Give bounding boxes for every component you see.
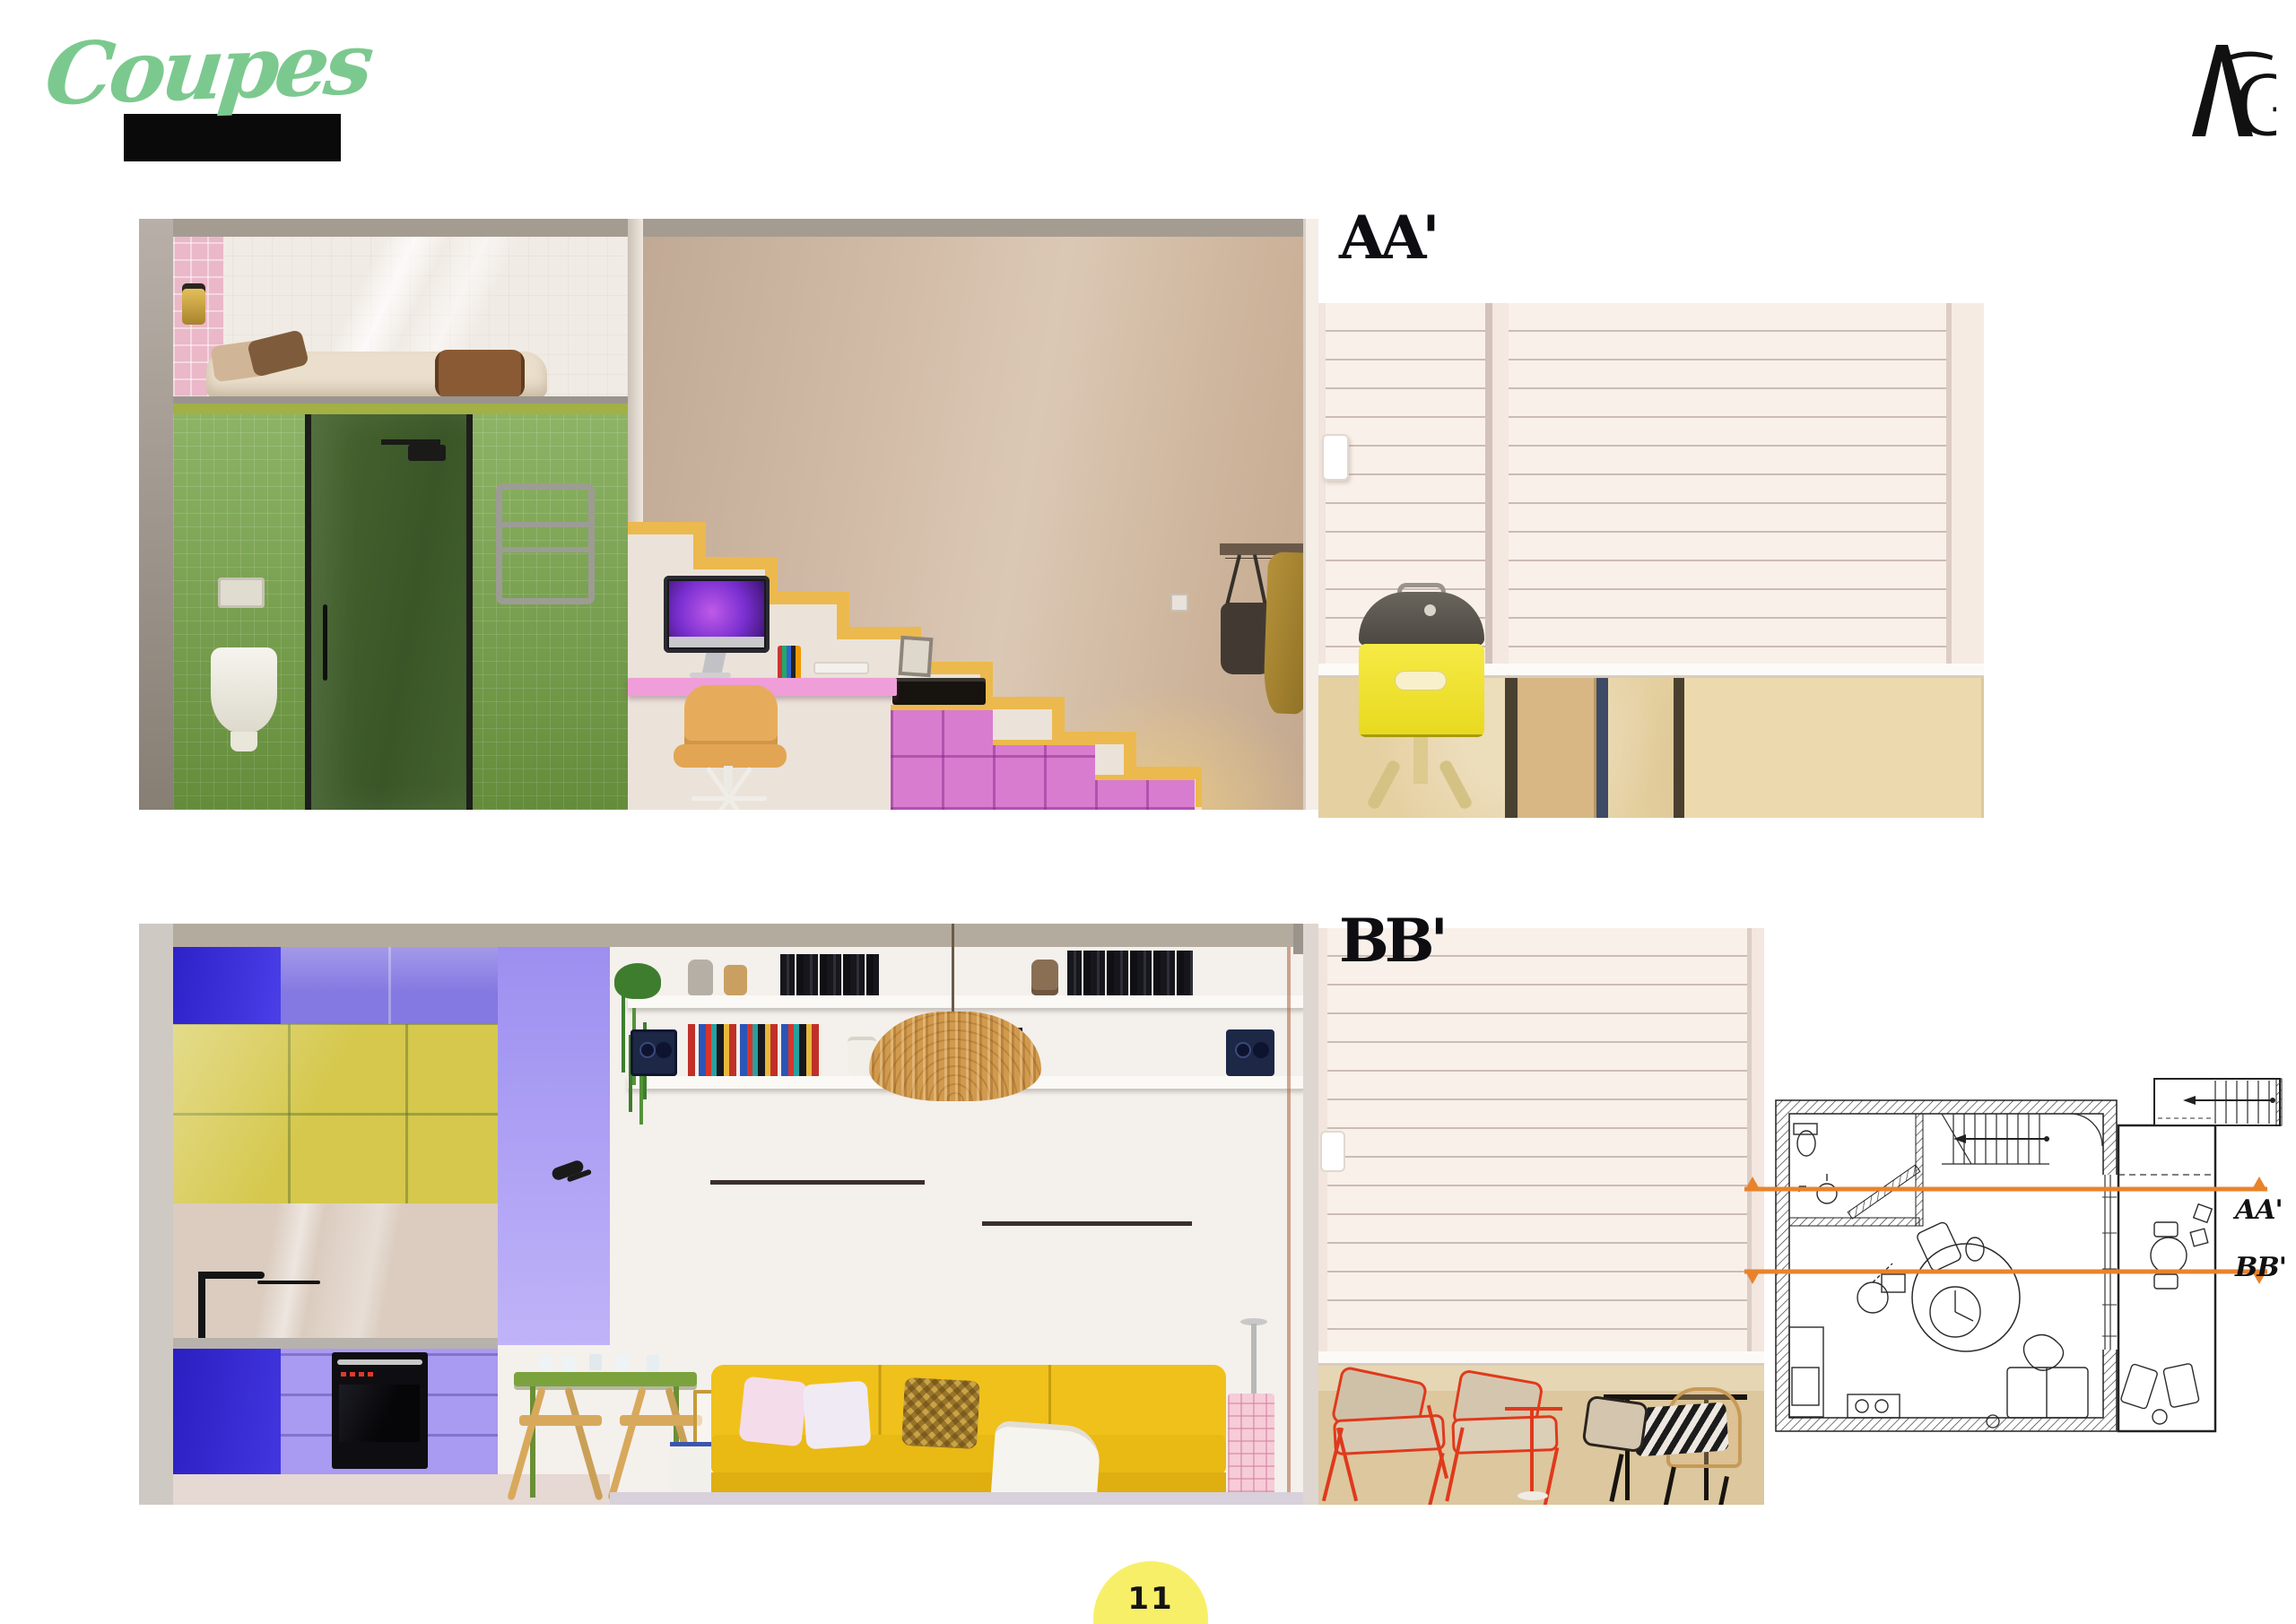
floor-lamp-pole	[1251, 1324, 1257, 1394]
oven-handle	[337, 1359, 422, 1365]
pendant-cord	[952, 924, 954, 1015]
bedroom-sconce-lamp	[182, 289, 205, 325]
speaker-left	[631, 1029, 677, 1076]
plan-bath-partition	[1789, 1218, 1919, 1226]
pen-cup	[778, 646, 801, 678]
plan-terrace-furniture	[2120, 1204, 2212, 1424]
dining-table-top	[514, 1372, 697, 1386]
door-frame-right	[1303, 219, 1318, 810]
wall-hung-toilet	[211, 647, 277, 734]
plan-label-aa: AA'	[2235, 1194, 2283, 1226]
ceiling-slab-bb	[173, 924, 1318, 947]
wall-groove-line-2	[982, 1221, 1192, 1226]
section-render-bb-terrace	[1318, 928, 1764, 1505]
chevron-cushion	[1632, 1402, 1729, 1456]
under-stair-storage-3	[1095, 775, 1195, 810]
bistro-chair-seatback	[1585, 1398, 1646, 1450]
oven	[332, 1352, 428, 1469]
red-side-table-foot	[1518, 1491, 1548, 1500]
page-number: 11	[1127, 1581, 1173, 1617]
door-frame-dark-2	[1674, 678, 1684, 818]
living-floor	[610, 1492, 1303, 1505]
kitchen-tall-cabinet-lilac	[498, 947, 610, 1345]
wall-shelf-upper	[628, 995, 1305, 1008]
ag-logo: G	[2187, 39, 2276, 143]
fence-post-right	[1946, 303, 1984, 673]
section-heading-aa: AA'	[1339, 208, 1436, 267]
bbq-label	[1395, 671, 1447, 690]
desk-photo-frame	[899, 636, 934, 677]
towel-radiator-frame	[496, 483, 595, 604]
floor-plan-drawing	[1740, 1072, 2287, 1448]
imac-screen	[664, 576, 770, 653]
kitchen-counter-edge	[173, 1338, 498, 1349]
fence-bottom-rail-bb	[1318, 1351, 1764, 1366]
toilet-base	[230, 732, 257, 751]
plan-armchair	[1916, 1221, 1962, 1272]
section-render-aa-interior	[139, 219, 1318, 810]
shower-frame-left	[305, 414, 311, 810]
red-side-table-leg	[1530, 1407, 1534, 1497]
fence-post-mid	[1485, 303, 1509, 671]
under-stair-storage-1	[891, 705, 993, 810]
terrace-door-panel	[1518, 678, 1596, 818]
logo-letter-g: G	[2233, 58, 2276, 143]
plan-label-bb: BB'	[2235, 1252, 2286, 1283]
hanging-plant	[614, 963, 661, 999]
speaker-cones-2	[1235, 1042, 1251, 1058]
imac-chin	[669, 637, 764, 647]
folding-chair-seat	[519, 1415, 602, 1426]
book-stack-upper-2	[1067, 951, 1193, 995]
kitchen-backsplash	[173, 1203, 498, 1338]
imac-base	[690, 673, 731, 678]
speaker-right	[1226, 1029, 1274, 1076]
speaker-cones	[639, 1042, 656, 1058]
sofa-pillow-pink	[738, 1376, 807, 1447]
copper-trim	[1287, 947, 1291, 1505]
shower-door-handle	[323, 604, 327, 681]
plan-kitchen	[1789, 1327, 1900, 1418]
page-title: Coupes	[40, 14, 374, 125]
plant-vines	[622, 995, 625, 1073]
shower-frame-right	[466, 414, 473, 810]
terrace-wall-light	[1684, 678, 1984, 818]
plan-shower-screen	[1848, 1165, 1920, 1219]
cut-wall-right-bb	[1303, 924, 1318, 1505]
book-stack-upper	[780, 954, 879, 995]
plan-sink	[1817, 1184, 1837, 1203]
kitchen-lower-cabinet-blue	[173, 1349, 281, 1474]
section-render-bb-interior	[139, 924, 1318, 1505]
door-frame-navy	[1596, 678, 1608, 818]
gate-handle	[1322, 434, 1349, 481]
folding-chair-b-seat	[620, 1415, 702, 1426]
plaid-panel	[1228, 1394, 1274, 1505]
red-chair-2-seat	[1454, 1418, 1555, 1452]
sofa-pillow-patterned	[901, 1377, 980, 1449]
cut-wall-left	[139, 219, 173, 810]
floor-plan	[1740, 1072, 2287, 1448]
shelf-vase-wicker	[724, 965, 747, 995]
kitchen-glass-panels-yellow	[173, 1024, 498, 1203]
folding-chair-b-leg	[607, 1386, 647, 1500]
shelf-vase-brown	[1031, 960, 1058, 995]
bbq-vent	[1424, 604, 1436, 616]
rattan-pendant-lamp	[869, 1012, 1041, 1101]
section-heading-bb: BB'	[1339, 911, 1444, 970]
door-frame-dark	[1505, 678, 1518, 818]
kitchen-faucet	[198, 1272, 205, 1340]
plan-section-lines	[1744, 1177, 2267, 1284]
sofa-pillow-lilac	[803, 1381, 872, 1450]
gate-handle-bb	[1320, 1131, 1345, 1172]
plan-chair	[1857, 1282, 1888, 1313]
shower-head	[408, 445, 446, 461]
shelf-vase-grey	[688, 960, 713, 995]
red-chair-seat	[1335, 1417, 1443, 1453]
kitchen-upper-cabinet-blue	[173, 947, 281, 1024]
ag-logo-graphic: G	[2187, 39, 2276, 143]
towel-radiator-bar-2	[501, 547, 589, 552]
title-underline-bar	[124, 114, 341, 161]
plan-glazing-opening	[2101, 1175, 2118, 1350]
bbq-leg-center	[1413, 737, 1428, 784]
desk-chair-back	[684, 685, 778, 750]
fence-post-left	[1318, 303, 1326, 671]
section-render-aa-terrace	[1318, 303, 1984, 818]
kitchen-faucet-spout	[198, 1272, 265, 1279]
desk-chair-seat	[674, 744, 787, 768]
plan-door-swing	[2070, 1114, 2102, 1146]
wall-groove-line	[710, 1180, 925, 1185]
plan-stair-annex	[2154, 1079, 2282, 1125]
shower-glass-door	[305, 414, 473, 810]
red-side-table-top	[1505, 1407, 1562, 1411]
light-switch	[1170, 594, 1188, 612]
towel-radiator-bar	[501, 522, 589, 527]
table-glassware	[539, 1356, 552, 1372]
plan-sofa	[2007, 1334, 2088, 1418]
bed-duffel-bag	[435, 350, 525, 398]
toilet-flush-plate	[218, 578, 265, 608]
page-number-badge: 11	[1093, 1561, 1208, 1624]
bbq-body	[1359, 644, 1484, 737]
desk-power-strip	[813, 662, 869, 674]
terrace-fence-bb	[1318, 928, 1764, 1351]
kitchen-floor	[173, 1474, 610, 1505]
book-row-colorful	[688, 1024, 822, 1076]
oven-display	[341, 1372, 377, 1376]
imac-wallpaper	[669, 581, 764, 637]
cut-wall-left-bb	[139, 924, 173, 1505]
under-stair-storage-2	[993, 740, 1095, 810]
page-canvas: Coupes G AA'	[0, 0, 2296, 1624]
hifi-unit	[892, 678, 986, 705]
ceiling-slab	[173, 219, 1318, 237]
oven-glass	[339, 1385, 420, 1442]
